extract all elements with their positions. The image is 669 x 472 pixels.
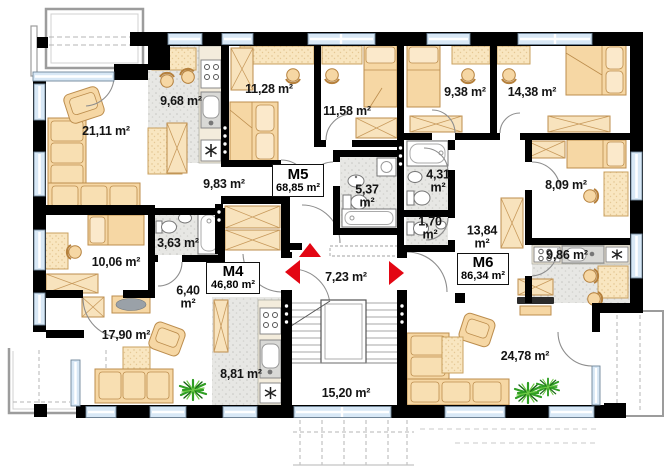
apartment-area: 86,34 m² (461, 270, 505, 283)
side-table-m4 (112, 296, 150, 313)
apartment-name: M4 (223, 264, 244, 279)
bed-m5-1 (230, 102, 278, 162)
room-label-bedroom1-m6: 9,38 m² (444, 85, 486, 99)
canopy-bottom-center (293, 420, 414, 465)
room-label-kitchen-m6: 9,86 m² (546, 248, 588, 262)
arrow-m5 (299, 243, 321, 257)
coffee-table-m6 (442, 337, 463, 373)
tv-stand-m6 (517, 279, 554, 315)
floor-plan-graphics (0, 0, 669, 472)
room-label-kitchen-m4: 8,81 m² (220, 367, 262, 381)
hall-dashed-outline (330, 246, 400, 256)
room-label-bedroom2-m6: 14,38 m² (508, 85, 556, 99)
arrow-m6 (389, 261, 404, 285)
window-strip-nw (33, 72, 114, 81)
room-label-living-m5: 21,11 m² (82, 124, 130, 138)
desk (497, 46, 530, 64)
desk (322, 46, 362, 64)
kitchen-counter-m5 (199, 46, 223, 163)
desk (604, 172, 628, 216)
apartment-badge-m6: M6 86,34 m² (457, 253, 509, 285)
room-label-hall-m4: 6,40 m² (169, 284, 207, 310)
room-label-bedroom1-m5: 11,28 m² (245, 82, 293, 96)
kitchen-counter-m4 (258, 300, 283, 405)
room-label-bathroom-m5: 5,37 m² (348, 183, 386, 209)
balcony-bottom-right (420, 311, 663, 443)
room-label-living-m6: 24,78 m² (501, 349, 549, 363)
room-label-entrance: 7,23 m² (325, 270, 367, 284)
room-label-living-m4: 17,90 m² (102, 328, 150, 342)
bed-m6-2 (566, 45, 626, 95)
plant-m4 (180, 380, 206, 400)
room-label-bathroom-m6: 4,31 m² (419, 168, 457, 194)
room-label-hall-m6: 13,84 m² (463, 224, 501, 250)
plant-m6b (537, 379, 559, 396)
desk (452, 46, 490, 64)
apartment-area: 46,80 m² (211, 279, 255, 292)
staircase (288, 300, 399, 363)
room-label-wc-m6: 1,70 m² (411, 215, 449, 241)
apartment-badge-m5: M5 68,85 m² (272, 164, 324, 197)
bed-m6-1 (407, 45, 440, 107)
apartment-area: 68,85 m² (276, 182, 320, 195)
room-label-bedroom2-m5: 11,58 m² (323, 104, 371, 118)
room-label-staircase: 15,20 m² (322, 386, 370, 400)
room-label-hall-m5: 9,83 m² (203, 177, 245, 191)
bed-m4 (88, 215, 144, 245)
bed-m6-3 (567, 140, 626, 168)
kitchen-table-m6 (598, 266, 628, 298)
sofa-m4 (95, 369, 173, 403)
plant-m6 (515, 383, 541, 403)
room-label-bedroom-m4: 10,06 m² (92, 255, 140, 269)
floor-plan: 21,11 m² 9,68 m² 11,28 m² 11,58 m² 9,38 … (0, 0, 669, 472)
apartment-name: M6 (473, 255, 494, 270)
room-label-bathroom-m4: 3,63 m² (157, 236, 199, 250)
bed-m5-2 (364, 45, 397, 107)
armchair-m4 (147, 320, 187, 357)
room-label-kitchen-m5: 9,68 m² (160, 94, 202, 108)
arrow-m4 (285, 260, 300, 284)
room-label-bedroom3-m6: 8,09 m² (545, 178, 587, 192)
apartment-badge-m4: M4 46,80 m² (206, 262, 260, 294)
apartment-name: M5 (288, 167, 309, 182)
